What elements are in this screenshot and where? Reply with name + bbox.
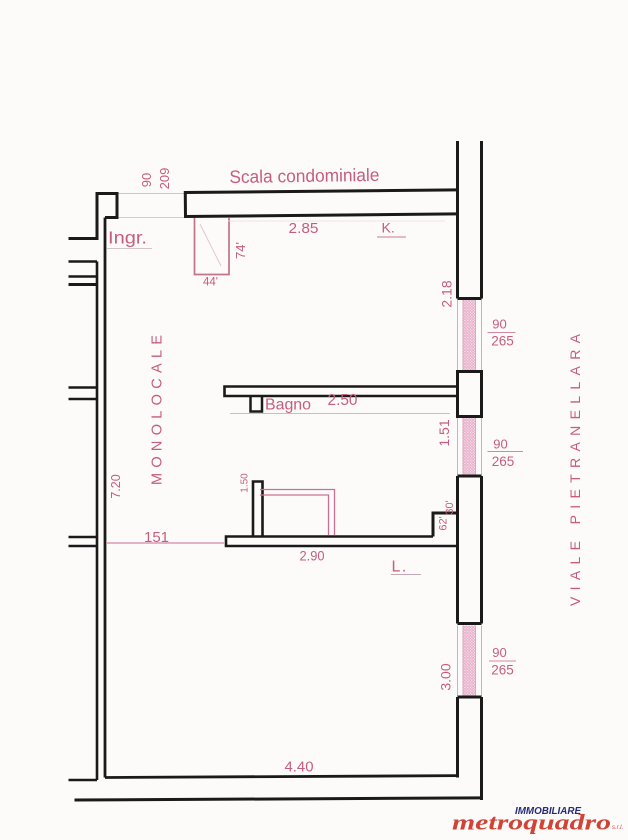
svg-text:90: 90 <box>492 317 506 332</box>
svg-text:3.00: 3.00 <box>438 663 454 690</box>
svg-text:90: 90 <box>139 173 154 187</box>
svg-text:2.18: 2.18 <box>439 280 455 307</box>
svg-text:1.50: 1.50 <box>240 473 251 493</box>
svg-text:K.: K. <box>382 220 395 236</box>
svg-text:s.r.l.: s.r.l. <box>612 825 623 831</box>
svg-text:209: 209 <box>157 168 172 190</box>
svg-text:30': 30' <box>444 500 456 514</box>
svg-text:265: 265 <box>491 334 514 349</box>
svg-text:62': 62' <box>438 516 450 530</box>
svg-text:Ingr.: Ingr. <box>108 228 147 248</box>
svg-text:265: 265 <box>491 663 514 678</box>
svg-text:2.90: 2.90 <box>300 548 325 564</box>
svg-text:4.40: 4.40 <box>285 760 314 776</box>
svg-text:44': 44' <box>203 277 218 289</box>
svg-text:metroquadro: metroquadro <box>452 810 611 835</box>
svg-text:90: 90 <box>493 437 507 452</box>
svg-text:Scala condominiale: Scala condominiale <box>229 165 379 187</box>
svg-text:2.50: 2.50 <box>328 392 358 409</box>
svg-text:151: 151 <box>144 530 169 546</box>
svg-text:L.: L. <box>392 559 408 576</box>
svg-text:90: 90 <box>492 645 506 660</box>
svg-text:Bagno: Bagno <box>265 397 311 414</box>
svg-text:74': 74' <box>233 242 248 259</box>
svg-text:1.51: 1.51 <box>436 419 452 446</box>
svg-text:2.85: 2.85 <box>289 221 319 237</box>
svg-text:7.20: 7.20 <box>109 474 123 498</box>
svg-text:265: 265 <box>492 454 515 469</box>
